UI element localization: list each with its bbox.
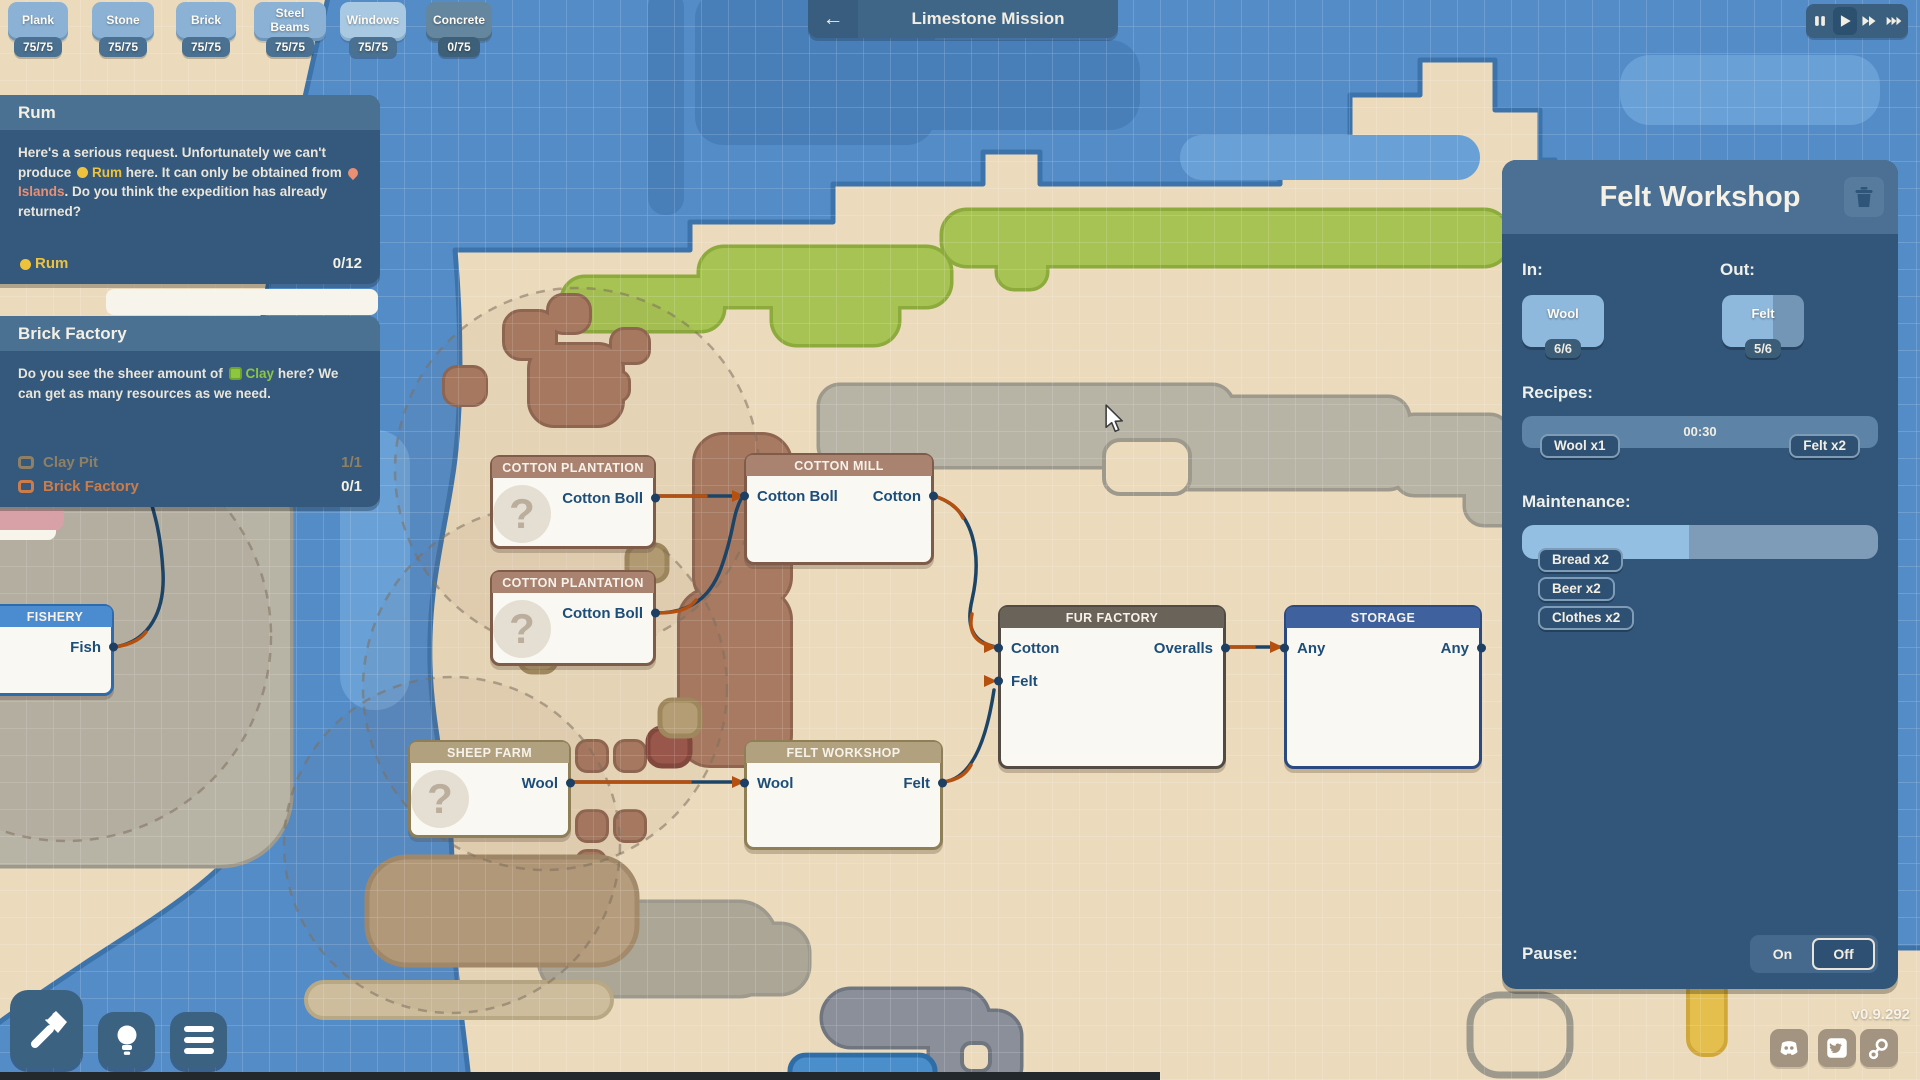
port-out[interactable]: Cotton Boll	[562, 490, 643, 507]
steam-icon	[1866, 1035, 1892, 1061]
resource-count: 75/75	[14, 37, 62, 57]
port-out[interactable]: Cotton Boll	[562, 605, 643, 622]
hidden-card-edge2	[0, 530, 56, 540]
fastest-speed-button[interactable]	[1882, 7, 1906, 35]
quest-body: Do you see the sheer amount of Clay here…	[0, 351, 380, 403]
question-mark-icon: ?	[493, 485, 551, 543]
rum-icon	[77, 167, 88, 178]
quest-card-brick-factory[interactable]: Brick Factory Do you see the sheer amoun…	[0, 316, 380, 507]
port-dot	[1280, 644, 1289, 653]
arrow-left-icon: ←	[823, 7, 844, 31]
recipes-label: Recipes:	[1522, 383, 1878, 403]
panel-title: Felt Workshop	[1502, 160, 1898, 234]
node-title: FUR FACTORY	[1000, 607, 1224, 628]
game-screen: COTTON PLANTATION Cotton Boll ? COTTON M…	[0, 0, 1920, 1080]
pause-toggle: On Off	[1750, 935, 1878, 973]
fastest-speed-icon	[1885, 12, 1903, 30]
out-label: Out:	[1720, 260, 1755, 280]
fast-forward-button[interactable]	[1857, 7, 1881, 35]
map-node-cotton-plantation-1[interactable]: COTTON PLANTATION Cotton Boll ?	[490, 455, 656, 549]
port-dot	[651, 609, 660, 618]
pause-label: Pause:	[1522, 944, 1578, 964]
quest-title: Brick Factory	[0, 316, 380, 351]
port-out[interactable]: Wool	[522, 775, 558, 792]
map-node-storage[interactable]: STORAGE Any Any	[1284, 605, 1482, 769]
resource-chip-steel-beams[interactable]: Steel Beams 75/75	[254, 2, 326, 57]
mission-title: Limestone Mission	[858, 0, 1118, 38]
port-out[interactable]: Fish	[70, 639, 101, 656]
node-title: COTTON PLANTATION	[492, 572, 654, 593]
node-title: COTTON MILL	[746, 455, 932, 476]
build-button[interactable]	[10, 990, 83, 1068]
maintenance-item-list: Bread x2 Beer x2 Clothes x2	[1522, 548, 1878, 630]
map-node-fishery[interactable]: FISHERY Fish	[0, 604, 114, 696]
node-title: FISHERY	[0, 606, 112, 627]
node-title: SHEEP FARM	[410, 742, 569, 763]
twitter-icon	[1824, 1035, 1850, 1061]
resource-count: 75/75	[349, 37, 397, 57]
lightbulb-icon	[112, 1023, 142, 1057]
quest-title: Rum	[0, 95, 380, 130]
discord-icon	[1776, 1036, 1802, 1060]
resource-chip-windows[interactable]: Windows 75/75	[340, 2, 406, 57]
output-count-badge: 5/6	[1745, 339, 1781, 358]
building-icon	[18, 480, 34, 493]
port-in[interactable]: Wool	[757, 775, 793, 792]
port-dot	[1477, 644, 1486, 653]
resource-chip-brick[interactable]: Brick 75/75	[176, 2, 236, 57]
resource-count: 75/75	[266, 37, 314, 57]
quest-item-clay-pit: Clay Pit 1/1	[18, 454, 362, 471]
resource-chip-stone[interactable]: Stone 75/75	[92, 2, 154, 57]
hidden-card-edge	[106, 289, 378, 315]
discord-button[interactable]	[1770, 1029, 1808, 1067]
port-out[interactable]: Felt	[903, 775, 930, 792]
mission-bar: ← Limestone Mission	[808, 0, 1118, 38]
resource-count: 0/75	[438, 37, 479, 57]
map-edge	[0, 1072, 1160, 1080]
port-out[interactable]: Any	[1441, 640, 1469, 657]
map-node-fur-factory[interactable]: FUR FACTORY Cotton Overalls Felt	[998, 605, 1226, 769]
port-in[interactable]: Felt	[1011, 673, 1038, 690]
hammer-icon	[25, 1007, 69, 1051]
map-node-felt-workshop[interactable]: FELT WORKSHOP Wool Felt	[744, 740, 943, 850]
port-dot	[651, 494, 660, 503]
map-node-cotton-plantation-2[interactable]: COTTON PLANTATION Cotton Boll ?	[490, 570, 656, 666]
map-node-cotton-mill[interactable]: COTTON MILL Cotton Boll Cotton	[744, 453, 934, 565]
quest-item-list: Clay Pit 1/1 Brick Factory 0/1	[18, 447, 362, 495]
maintenance-label: Maintenance:	[1522, 492, 1878, 512]
building-inspector-panel: Felt Workshop In: Out: Wool 6/6 Felt 5/6	[1502, 160, 1898, 989]
port-dot	[994, 677, 1003, 686]
input-resource-chip[interactable]: Wool 6/6	[1522, 295, 1604, 347]
play-button[interactable]	[1833, 7, 1857, 35]
port-in[interactable]: Cotton	[1011, 640, 1059, 657]
resource-chip-plank[interactable]: Plank 75/75	[8, 2, 68, 57]
port-dot	[740, 492, 749, 501]
menu-button[interactable]	[170, 1012, 227, 1068]
pause-icon	[1811, 12, 1829, 30]
clay-icon	[229, 367, 242, 380]
port-dot	[109, 643, 118, 652]
trash-icon	[1854, 186, 1874, 208]
pause-button[interactable]	[1808, 7, 1832, 35]
twitter-button[interactable]	[1818, 1029, 1856, 1067]
delete-building-button[interactable]	[1844, 177, 1884, 217]
quest-body: Here's a serious request. Unfortunately …	[0, 130, 380, 221]
maintenance-item: Beer x2	[1538, 577, 1615, 601]
port-out[interactable]: Cotton	[873, 488, 921, 505]
port-dot	[740, 779, 749, 788]
question-mark-icon: ?	[493, 600, 551, 658]
node-title: COTTON PLANTATION	[492, 457, 654, 478]
ideas-button[interactable]	[98, 1012, 155, 1068]
port-dot	[938, 779, 947, 788]
recipe-input-chip: Wool x1	[1540, 434, 1620, 458]
resource-count: 75/75	[182, 37, 230, 57]
fast-forward-icon	[1860, 12, 1878, 30]
quest-card-rum[interactable]: Rum Here's a serious request. Unfortunat…	[0, 95, 380, 284]
node-title: FELT WORKSHOP	[746, 742, 941, 763]
recipe-output-chip: Felt x2	[1789, 434, 1860, 458]
port-dot	[994, 644, 1003, 653]
output-resource-chip[interactable]: Felt 5/6	[1722, 295, 1804, 347]
version-label: v0.9.292	[1852, 1006, 1910, 1023]
resource-chip-concrete[interactable]: Concrete 0/75	[426, 2, 492, 57]
node-title: STORAGE	[1286, 607, 1480, 628]
menu-icon	[184, 1026, 214, 1054]
rum-icon	[20, 259, 31, 270]
resource-count: 75/75	[99, 37, 147, 57]
back-button[interactable]: ←	[808, 0, 858, 38]
play-icon	[1836, 12, 1854, 30]
quest-objective-row: Rum 0/12	[18, 255, 362, 272]
building-icon	[18, 456, 34, 469]
in-label: In:	[1522, 260, 1720, 280]
location-pin-icon	[345, 165, 359, 179]
map-node-sheep-farm[interactable]: SHEEP FARM Wool ?	[408, 740, 571, 838]
maintenance-item: Bread x2	[1538, 548, 1623, 572]
input-count-badge: 6/6	[1545, 339, 1581, 358]
port-dot	[566, 779, 575, 788]
pause-on-option[interactable]: On	[1753, 938, 1812, 970]
pause-off-option[interactable]: Off	[1812, 938, 1875, 970]
speed-controls	[1806, 4, 1908, 38]
question-mark-icon: ?	[411, 770, 469, 828]
port-in[interactable]: Any	[1297, 640, 1325, 657]
port-dot	[1221, 644, 1230, 653]
objective-progress: 0/12	[333, 255, 362, 272]
quest-item-brick-factory: Brick Factory 0/1	[18, 478, 362, 495]
maintenance-item: Clothes x2	[1538, 606, 1634, 630]
port-out[interactable]: Overalls	[1154, 640, 1213, 657]
port-dot	[929, 492, 938, 501]
port-in[interactable]: Cotton Boll	[757, 488, 838, 505]
steam-button[interactable]	[1860, 1029, 1898, 1067]
recipe-progress-bar[interactable]: 00:30 Wool x1 Felt x2	[1522, 416, 1878, 448]
